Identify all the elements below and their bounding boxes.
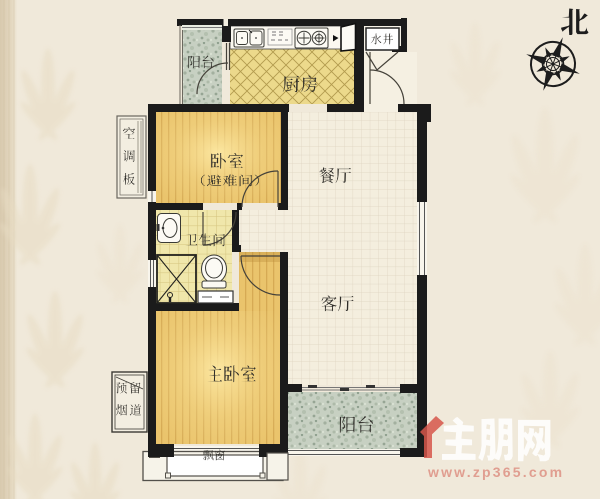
svg-text:www.zp365.com: www.zp365.com: [427, 464, 564, 480]
